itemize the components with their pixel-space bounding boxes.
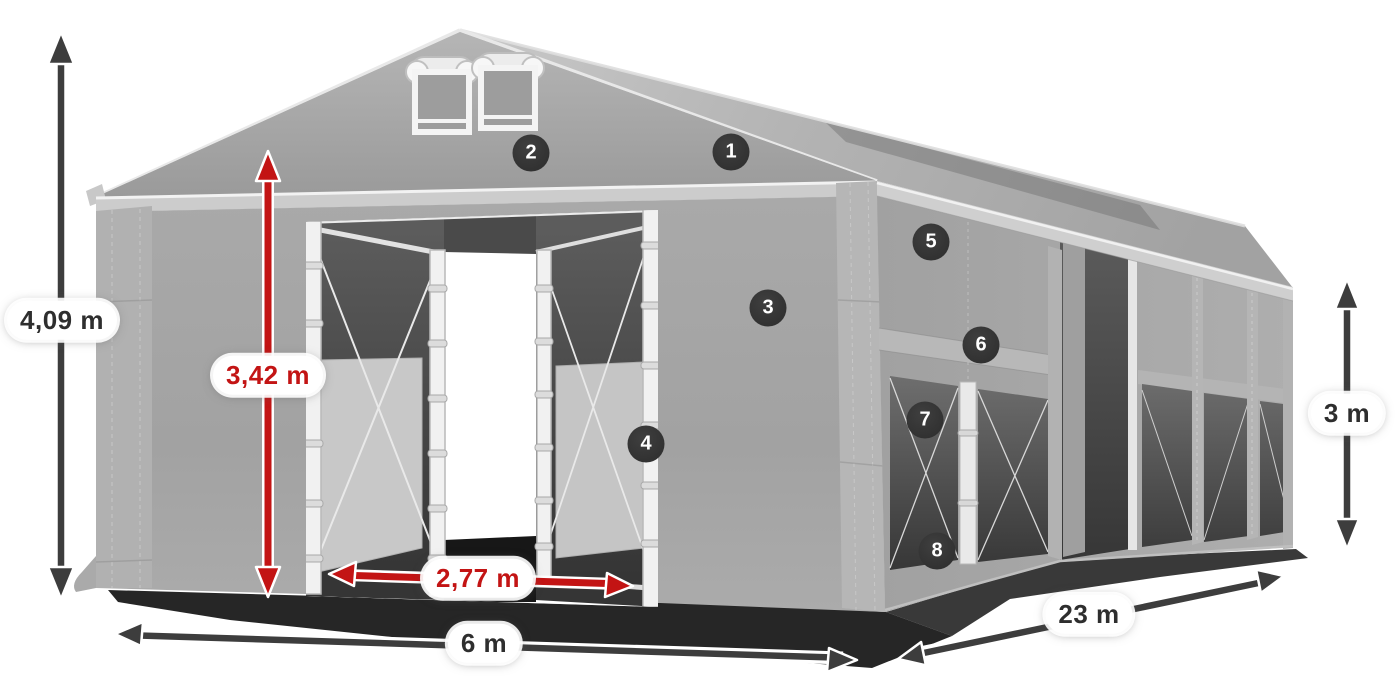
tent-illustration (0, 0, 1400, 700)
gable-vent-left (406, 57, 478, 132)
callout-marker-1: 1 (713, 134, 750, 171)
gable-vent-right (472, 53, 544, 128)
dimension-label-side-height: 3 m (1311, 394, 1383, 433)
callout-marker-2: 2 (513, 135, 550, 172)
dimension-label-inner-height: 3,42 m (213, 356, 323, 395)
callout-marker-7: 7 (907, 402, 944, 439)
callout-marker-8: 8 (919, 533, 956, 570)
entrance-interior (300, 200, 670, 620)
callout-marker-4: 4 (628, 426, 665, 463)
front-corner-right (836, 181, 885, 612)
dimension-label-width: 6 m (448, 624, 520, 663)
tent-dimensions-diagram: 4,09 m 3,42 m 2,77 m 6 m 23 m 3 m 1 2 3 … (0, 0, 1400, 700)
callout-marker-6: 6 (963, 327, 1000, 364)
callout-marker-5: 5 (913, 224, 950, 261)
dimension-label-entrance-width: 2,77 m (423, 559, 533, 598)
callout-marker-3: 3 (750, 290, 787, 327)
dimension-label-total-height: 4,09 m (7, 301, 117, 340)
front-corner-left (74, 206, 152, 592)
dimension-label-length: 23 m (1045, 595, 1132, 634)
